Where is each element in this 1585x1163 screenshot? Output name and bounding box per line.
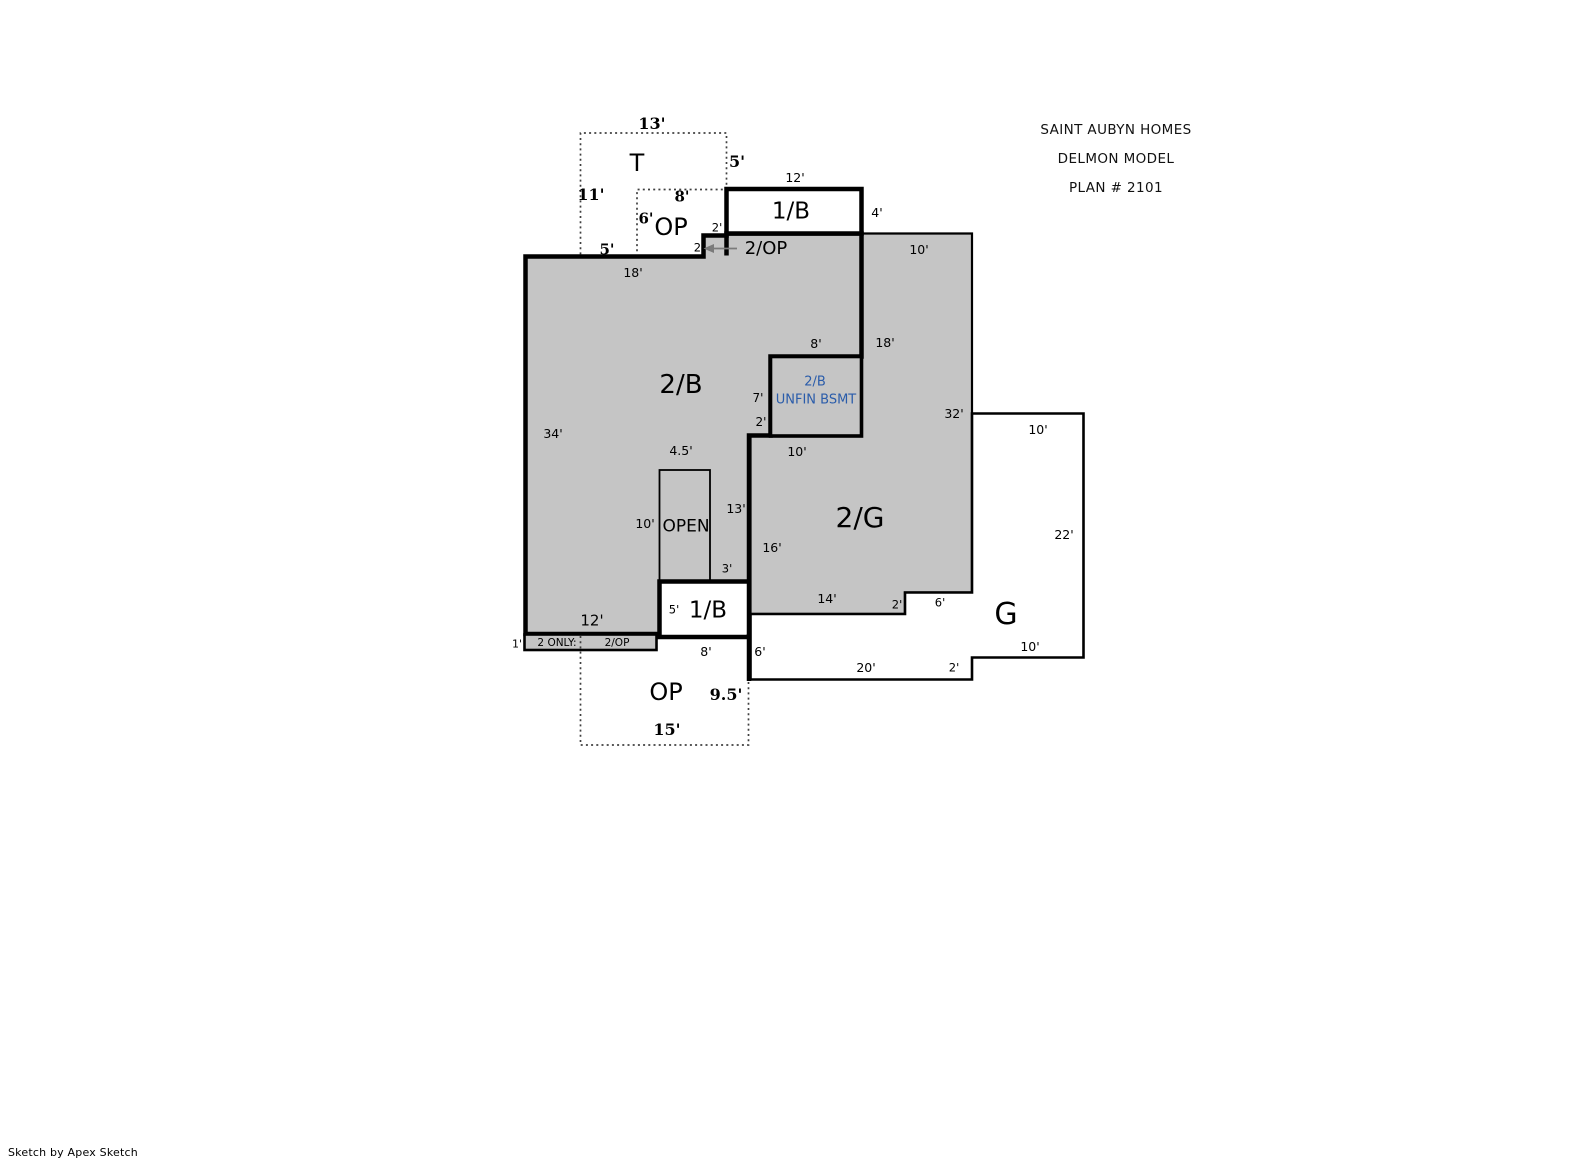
- lower-1b-shape: [660, 582, 750, 638]
- sketch-credit: Sketch by Apex Sketch: [8, 1146, 138, 1159]
- strip-2only-shape: [525, 635, 657, 651]
- title-company: SAINT AUBYN HOMES: [1016, 122, 1216, 138]
- open-area-shape: [660, 470, 711, 582]
- title-plan-number: PLAN # 2101: [1016, 180, 1216, 196]
- title-model: DELMON MODEL: [1016, 151, 1216, 167]
- floor-plan-sketch: 13'T5'11'8'6'OP5'2'2'2/OP12'1/B4'10'18'2…: [0, 0, 1585, 1163]
- op-bottom-dotted-outline: [581, 636, 749, 745]
- unfin-bsmt-shape: [771, 357, 862, 437]
- floor-plan-canvas: [0, 0, 1585, 1163]
- title-block: SAINT AUBYN HOMES DELMON MODEL PLAN # 21…: [1016, 122, 1216, 209]
- upper-1b-shape: [727, 189, 862, 234]
